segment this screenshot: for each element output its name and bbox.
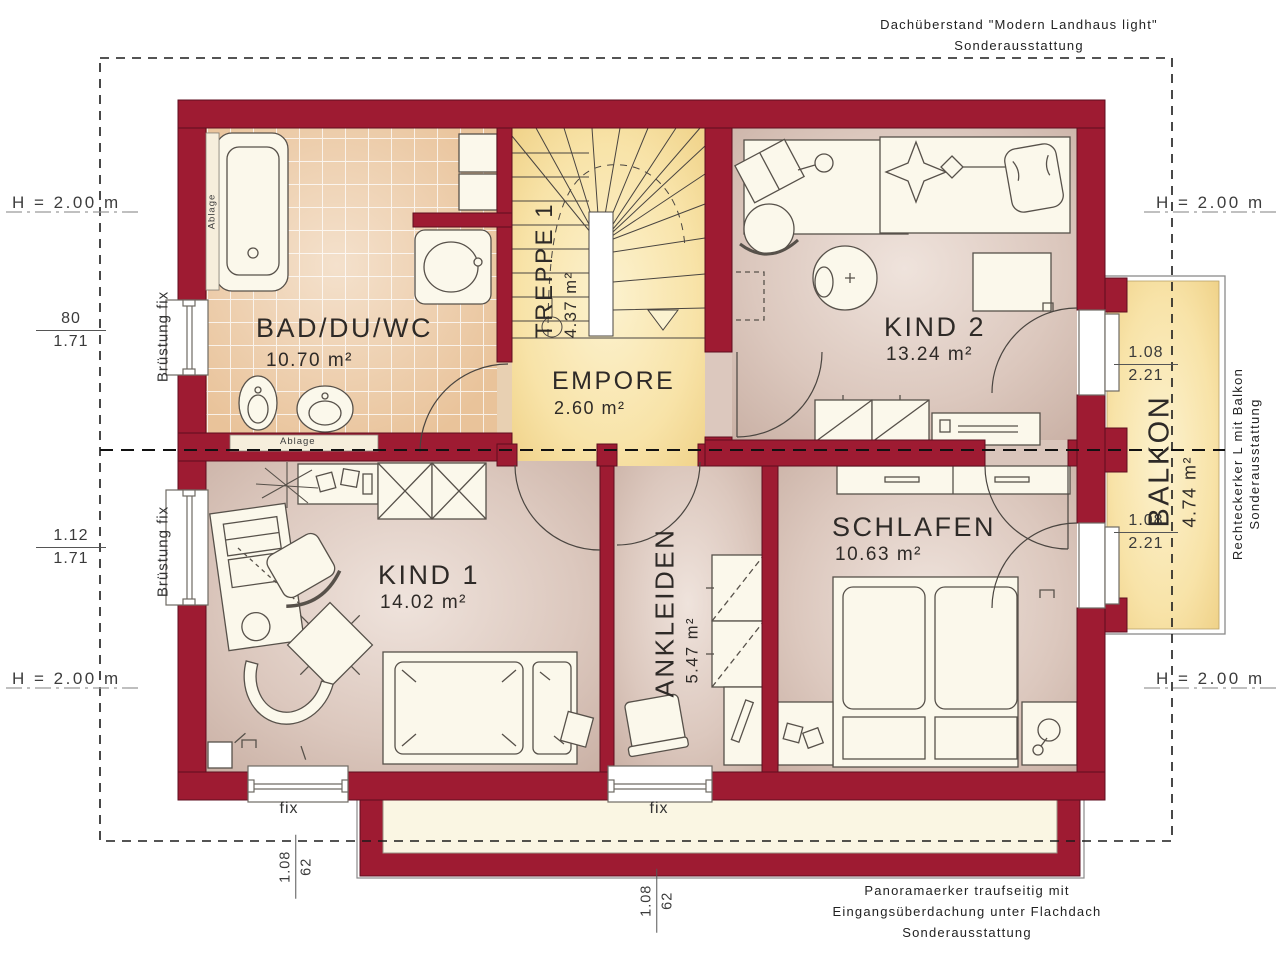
room-label-balkon: BALKON 4.74 m² <box>1144 388 1201 528</box>
dim-num: 1.08 <box>1114 344 1178 365</box>
ankleiden-chair <box>620 693 688 757</box>
balcony-door-schlafen <box>1079 523 1119 608</box>
bath-cabinet <box>459 134 497 210</box>
height-marker-top-left: H = 2.00 m <box>12 193 121 213</box>
bay-note-line1: Panoramaerker traufseitig mit <box>772 880 1162 901</box>
dim-num: 1.12 <box>36 527 106 548</box>
bidet <box>239 376 277 430</box>
kind2-wardrobe <box>815 395 929 442</box>
room-label-schlafen: SCHLAFEN <box>832 512 996 543</box>
kind1-wardrobe <box>378 463 486 519</box>
dim-num: 1.08 <box>277 835 296 899</box>
room-label-treppe-area: 4.37 m² <box>562 272 581 338</box>
room-area-bad: 10.70 m² <box>266 350 353 372</box>
room-label-treppe-name: TREPPE 1 <box>531 202 559 338</box>
dim-num: 1.08 <box>638 869 657 933</box>
window-bottom-left-fix <box>248 766 348 802</box>
schlafen-nightstand-left <box>778 702 833 765</box>
window-bottom-mid-fix <box>608 766 712 802</box>
room-area-schlafen: 10.63 m² <box>835 544 922 566</box>
roof-note-line1: Dachüberstand "Modern Landhaus light" <box>860 14 1178 35</box>
dim-window-bottom-left: 1.08 62 <box>277 835 314 899</box>
kind2-bed <box>880 137 1070 233</box>
parapet-label-kind1: Brüstung fix <box>155 497 172 607</box>
room-label-ankleiden: ANKLEIDEN 5.47 m² <box>650 528 703 698</box>
kind1-counter <box>298 464 378 504</box>
dim-window-bottom-mid: 1.08 62 <box>638 869 675 933</box>
kind1-bed <box>383 652 577 764</box>
parapet-label-bad: Brüstung fix <box>155 282 172 392</box>
ankleiden-cabinet <box>724 687 764 765</box>
dim-den: 2.21 <box>1114 533 1178 553</box>
bay-panoramaerker <box>357 787 1084 878</box>
dim-den: 62 <box>658 869 676 933</box>
height-marker-bottom-left: H = 2.00 m <box>12 669 121 689</box>
window-kind1-left <box>166 490 208 605</box>
dim-den: 62 <box>297 835 315 899</box>
ankleiden-closet <box>706 555 764 687</box>
kind2-round-chair <box>813 246 877 310</box>
room-label-balkon-area: 4.74 m² <box>1180 456 1201 528</box>
schlafen-double-bed <box>833 577 1018 767</box>
roof-note: Dachüberstand "Modern Landhaus light" So… <box>860 14 1178 56</box>
fix-label-mid: fix <box>634 800 684 818</box>
balcony-note: Rechteckerker L mit Balkon Sonderausstat… <box>1230 354 1262 574</box>
room-area-kind1: 14.02 m² <box>380 592 467 614</box>
room-label-ankleiden-area: 5.47 m² <box>684 617 703 697</box>
window-bad-left <box>166 300 208 375</box>
bay-note-line2: Eingangsüberdachung unter Flachdach <box>772 901 1162 922</box>
bathtub <box>216 133 288 291</box>
fix-label-left: fix <box>264 800 314 818</box>
room-label-treppe: TREPPE 1 4.37 m² <box>531 188 581 338</box>
dim-den: 1.71 <box>36 331 106 351</box>
room-label-balkon-name: BALKON <box>1144 395 1177 528</box>
shelf-label-horizontal: Ablage <box>280 436 316 447</box>
floor-plan: Dachüberstand "Modern Landhaus light" So… <box>0 0 1280 960</box>
room-area-kind2: 13.24 m² <box>886 344 973 366</box>
dim-den: 1.71 <box>36 548 106 568</box>
toilet <box>297 386 353 432</box>
room-label-ankleiden-name: ANKLEIDEN <box>650 528 681 698</box>
room-area-empore: 2.60 m² <box>554 398 626 419</box>
kind1-radiator <box>208 742 232 768</box>
height-marker-bottom-right: H = 2.00 m <box>1156 669 1265 689</box>
room-label-kind1: KIND 1 <box>378 560 480 591</box>
room-label-kind2: KIND 2 <box>884 312 986 343</box>
height-marker-top-right: H = 2.00 m <box>1156 193 1265 213</box>
dim-num: 80 <box>36 310 106 331</box>
schlafen-nightstand-right <box>1022 702 1077 765</box>
dim-window-kind1: 1.12 1.71 <box>36 527 106 568</box>
dim-den: 2.21 <box>1114 365 1178 385</box>
dim-balcony-door-top: 1.08 2.21 <box>1114 344 1178 385</box>
schlafen-wardrobe <box>837 466 1070 494</box>
balcony-door-kind2 <box>1079 310 1119 395</box>
room-label-empore: EMPORE <box>552 367 675 396</box>
balcony-note-line2: Sonderausstattung <box>1247 398 1262 529</box>
bay-note: Panoramaerker traufseitig mit Eingangsüb… <box>772 880 1162 943</box>
bay-note-line3: Sonderausstattung <box>772 922 1162 943</box>
room-label-bad: BAD/DU/WC <box>256 313 433 344</box>
shelf-label-vertical: Ablage <box>207 189 218 235</box>
washbasin <box>415 230 491 304</box>
balcony-note-line1: Rechteckerker L mit Balkon <box>1230 368 1245 560</box>
kind2-shelf <box>973 253 1053 311</box>
dim-window-bad: 80 1.71 <box>36 310 106 351</box>
roof-note-line2: Sonderausstattung <box>860 35 1178 56</box>
